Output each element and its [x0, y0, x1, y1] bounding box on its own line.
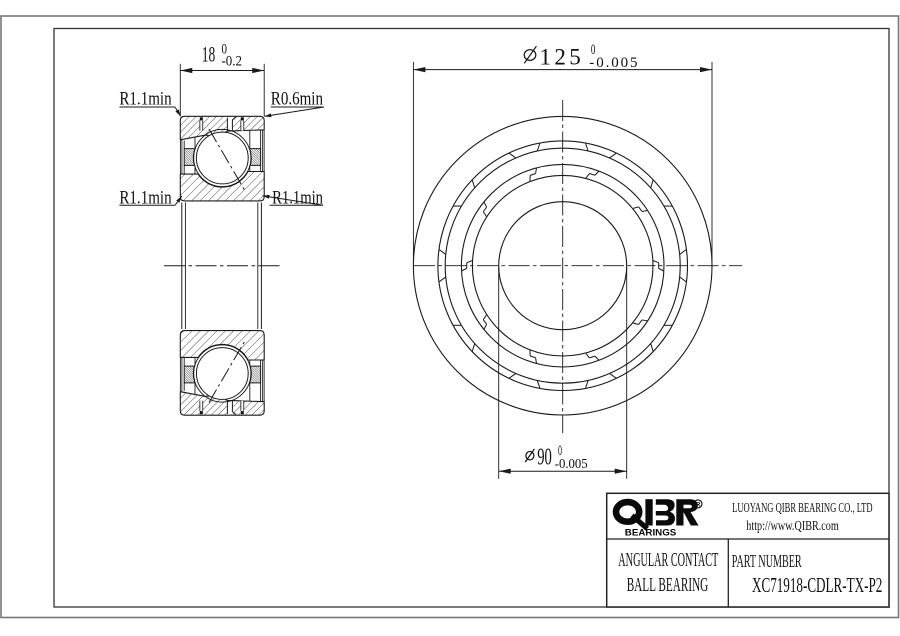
svg-text:XC71918-CDLR-TX-P2: XC71918-CDLR-TX-P2 — [752, 573, 882, 597]
svg-text:18: 18 — [202, 41, 216, 66]
svg-text:LUOYANG QIBR BEARING CO., LTD: LUOYANG QIBR BEARING CO., LTD — [732, 500, 873, 515]
svg-text:ANGULAR CONTACT: ANGULAR CONTACT — [618, 549, 718, 571]
svg-text:R: R — [696, 501, 701, 508]
svg-text:-0.2: -0.2 — [222, 54, 243, 70]
svg-text:90: 90 — [537, 444, 552, 470]
svg-text:-0.005: -0.005 — [589, 55, 637, 71]
svg-text:http://www.QIBR.com: http://www.QIBR.com — [746, 518, 839, 533]
svg-text:125: 125 — [540, 45, 581, 70]
svg-text:BEARINGS: BEARINGS — [625, 527, 677, 537]
svg-text:PART NUMBER: PART NUMBER — [732, 551, 802, 571]
svg-text:BALL BEARING: BALL BEARING — [627, 574, 709, 596]
svg-text:R0.6min: R0.6min — [271, 88, 324, 109]
svg-text:-0.005: -0.005 — [555, 457, 588, 472]
svg-text:R1.1min: R1.1min — [119, 88, 172, 109]
